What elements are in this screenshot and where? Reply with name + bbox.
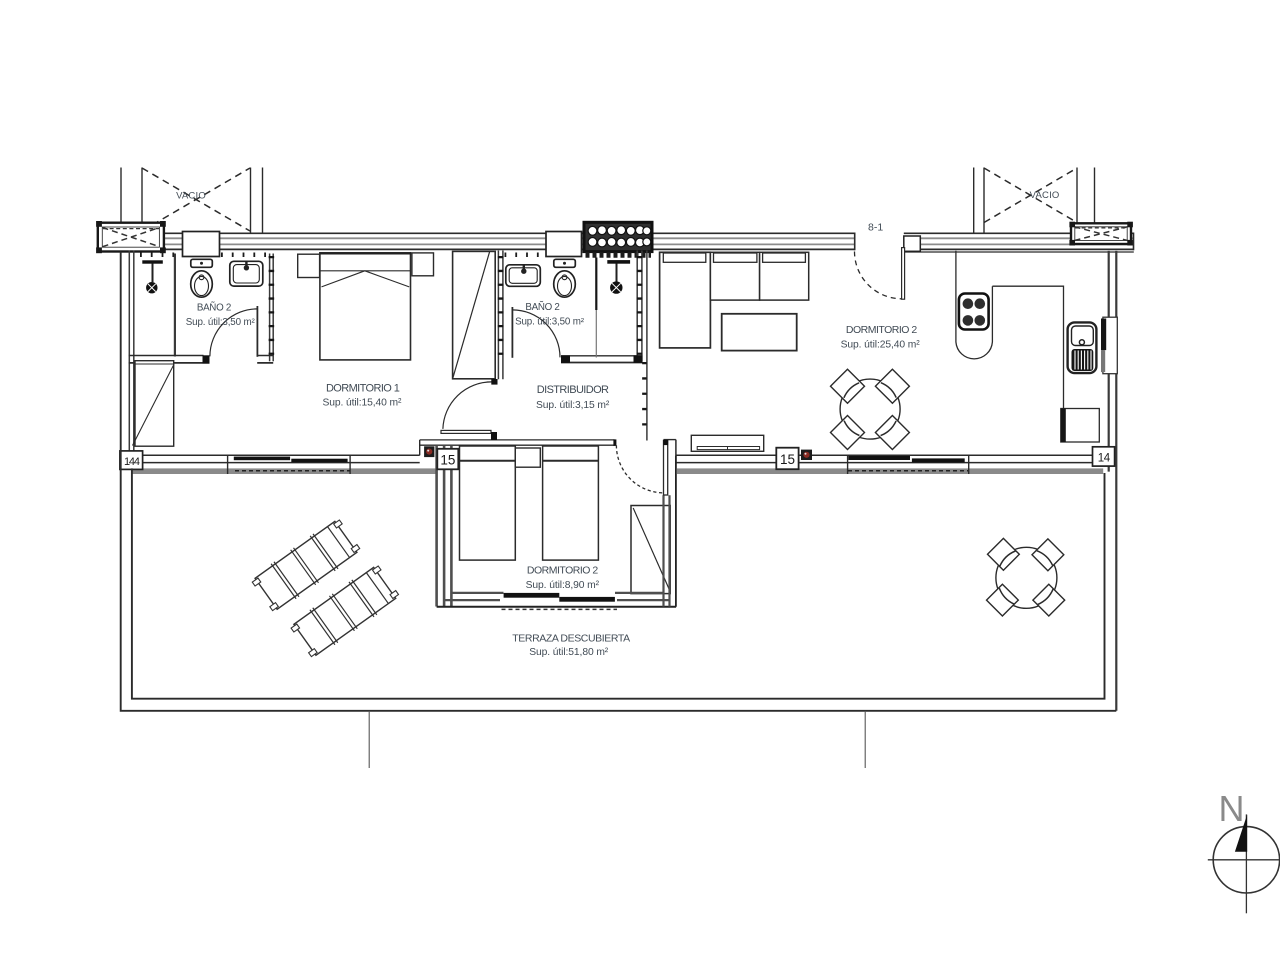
svg-text:Sup. útil:8,90 m²: Sup. útil:8,90 m² — [526, 580, 600, 591]
svg-text:Sup. útil:3,15 m²: Sup. útil:3,15 m² — [536, 400, 610, 411]
svg-text:VACIO: VACIO — [1030, 190, 1060, 201]
svg-text:15: 15 — [440, 452, 455, 467]
svg-text:VACIO: VACIO — [176, 191, 206, 202]
svg-text:N: N — [1219, 788, 1245, 829]
svg-text:DORMITORIO 2: DORMITORIO 2 — [846, 324, 917, 336]
svg-text:Sup. útil:3,50 m²: Sup. útil:3,50 m² — [515, 317, 585, 328]
svg-text:14: 14 — [1098, 452, 1111, 464]
svg-text:144: 144 — [124, 456, 140, 468]
svg-text:DORMITORIO 1: DORMITORIO 1 — [326, 382, 400, 394]
svg-text:8-1: 8-1 — [868, 222, 883, 234]
svg-text:BAÑO 2: BAÑO 2 — [525, 302, 559, 313]
svg-text:Sup. útil:3,50 m²: Sup. útil:3,50 m² — [186, 317, 256, 328]
svg-text:Sup. útil:15,40 m²: Sup. útil:15,40 m² — [322, 398, 402, 409]
svg-text:TERRAZA DESCUBIERTA: TERRAZA DESCUBIERTA — [512, 633, 630, 645]
svg-text:15: 15 — [780, 452, 795, 467]
svg-text:BAÑO 2: BAÑO 2 — [197, 303, 231, 314]
svg-text:Sup. útil:51,80 m²: Sup. útil:51,80 m² — [529, 647, 609, 658]
svg-text:DISTRIBUIDOR: DISTRIBUIDOR — [537, 384, 609, 396]
svg-text:Sup. útil:25,40 m²: Sup. útil:25,40 m² — [841, 339, 921, 350]
svg-text:DORMITORIO 2: DORMITORIO 2 — [527, 565, 598, 577]
